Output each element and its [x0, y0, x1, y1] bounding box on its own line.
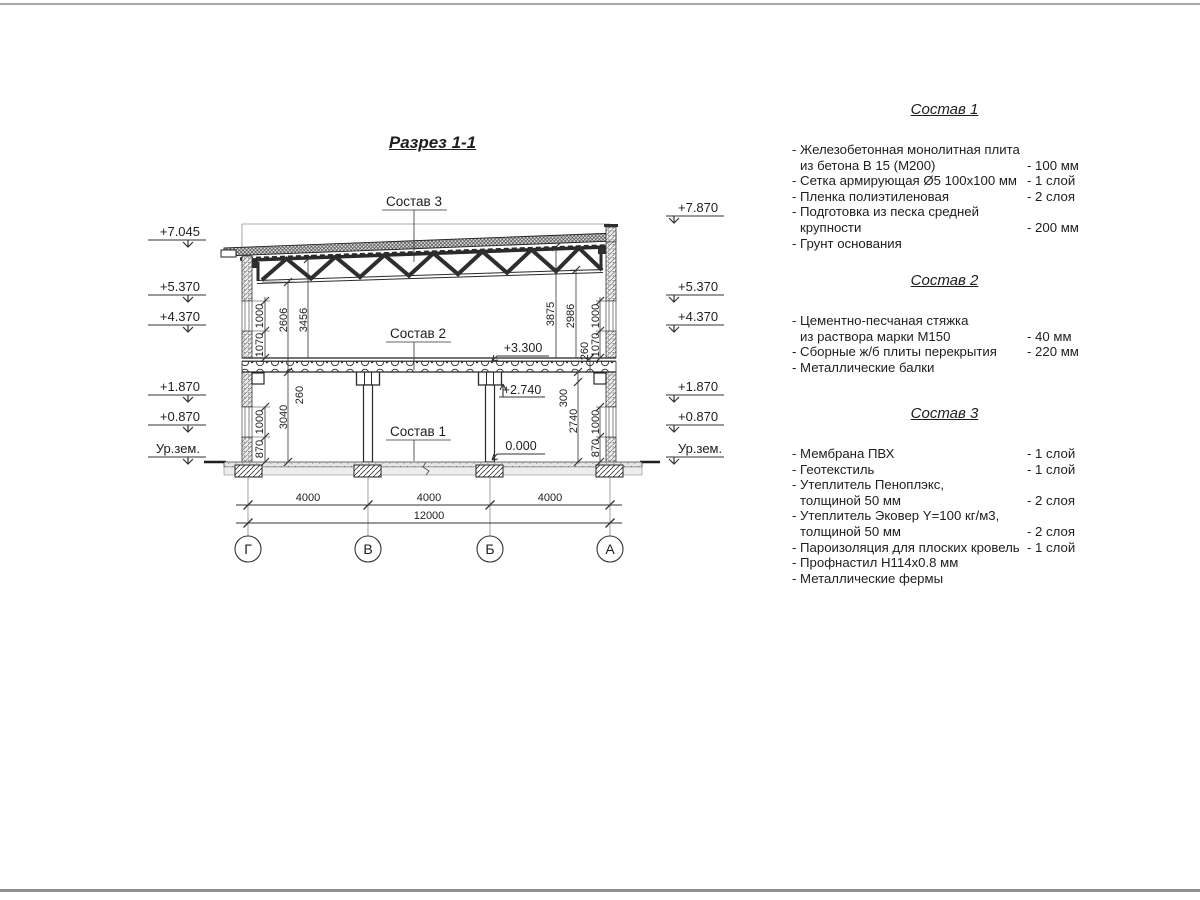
- svg-text:+4.370: +4.370: [678, 309, 718, 324]
- dim-label: 260: [294, 386, 306, 404]
- elevation-mark: Ур.зем.: [666, 441, 724, 464]
- svg-text:+2.740: +2.740: [503, 383, 542, 397]
- svg-text:+0.870: +0.870: [678, 409, 718, 424]
- dim-label: 300: [558, 389, 570, 407]
- dim-label: 2740: [568, 409, 580, 433]
- right-dimensions: 3875 2986 260 1000 1070 300 2740 1000 87…: [545, 243, 606, 466]
- composition-item: - Пароизоляция для плоских кровель - 1 с…: [792, 540, 1097, 556]
- composition-item: - Металлические фермы: [792, 571, 1097, 587]
- dim-label: 1000: [590, 410, 602, 434]
- composition-item: - Утеплитель Эковер Y=100 кг/м3,толщиной…: [792, 508, 1097, 539]
- ground-and-foundations: [204, 462, 660, 477]
- dim-span: 4000: [538, 492, 562, 504]
- left-dimensions: 1000 1070 2606 3456 260 3040 1000 870: [252, 255, 314, 466]
- elevation-mark: +0.870: [666, 409, 724, 432]
- columns: [357, 372, 502, 462]
- svg-text:Состав 3: Состав 3: [386, 194, 442, 209]
- composition-item: - Грунт основания: [792, 236, 1097, 252]
- composition-item: - Сборные ж/б плиты перекрытия - 220 мм: [792, 344, 1097, 360]
- svg-text:+7.045: +7.045: [160, 224, 200, 239]
- elevation-mark: +5.370: [666, 279, 724, 302]
- dim-label: 1000: [254, 304, 266, 328]
- dim-label: 870: [590, 439, 602, 457]
- composition-callouts: Состав 3 Состав 2 Состав 1: [382, 194, 451, 461]
- svg-text:Состав 1: Состав 1: [390, 424, 446, 439]
- svg-text:Ур.зем.: Ур.зем.: [156, 441, 200, 456]
- svg-text:+3.300: +3.300: [504, 341, 543, 355]
- svg-text:Ур.зем.: Ур.зем.: [678, 441, 722, 456]
- elevation-mark: +7.045: [148, 224, 206, 247]
- dim-label: 2606: [278, 308, 290, 332]
- left-elevation-marks: +7.045 +5.370 +4.370 +1.870 +0.870: [148, 224, 206, 464]
- composition-title: Состав 2: [792, 272, 1097, 289]
- svg-text:+1.870: +1.870: [678, 379, 718, 394]
- elevation-mark: +0.870: [148, 409, 206, 432]
- dim-label: 3875: [545, 302, 557, 326]
- dim-label: 870: [254, 440, 266, 458]
- composition-item: - Железобетонная монолитная плитаиз бето…: [792, 142, 1097, 173]
- composition-item: - Утеплитель Пеноплэкс,толщиной 50 мм - …: [792, 477, 1097, 508]
- svg-text:Состав 2: Состав 2: [390, 326, 446, 341]
- dim-label: 1070: [254, 333, 266, 357]
- window-left-upper: [242, 301, 252, 331]
- composition-item: - Подготовка из песка среднейкрупности -…: [792, 204, 1097, 235]
- elevation-mark: +5.370: [148, 279, 206, 302]
- composition-title: Состав 1: [792, 101, 1097, 118]
- axis-label: А: [605, 541, 615, 557]
- elevation-mark: +1.870: [148, 379, 206, 402]
- dim-label: 1070: [590, 333, 602, 357]
- svg-text:+0.870: +0.870: [160, 409, 200, 424]
- svg-text:+1.870: +1.870: [160, 379, 200, 394]
- svg-text:+4.370: +4.370: [160, 309, 200, 324]
- dim-span: 4000: [296, 492, 320, 504]
- dim-total: 12000: [414, 510, 445, 522]
- composition-item: - Профнастил Н114х0.8 мм: [792, 555, 1097, 571]
- level-2740: +2.740: [499, 383, 545, 397]
- axis-label: Г: [244, 541, 252, 557]
- dim-label: 3456: [298, 308, 310, 332]
- dim-label: 1000: [254, 410, 266, 434]
- elevation-mark: +4.370: [666, 309, 724, 332]
- svg-text:+5.370: +5.370: [160, 279, 200, 294]
- composition-title: Состав 3: [792, 405, 1097, 422]
- composition-item: - Сетка армирующая Ø5 100х100 мм - 1 сло…: [792, 173, 1097, 189]
- floor-slab: [242, 358, 616, 384]
- elevation-mark: Ур.зем.: [148, 441, 206, 464]
- interior-levels: +3.300 +2.740 0.000: [492, 341, 549, 460]
- window-right-lower: [606, 407, 616, 437]
- elevation-mark: +7.870: [666, 200, 724, 223]
- bottom-dimensions: 4000 4000 4000 12000: [236, 492, 622, 528]
- callout-sostav1: Состав 1: [386, 424, 451, 461]
- dim-label: 1000: [590, 304, 602, 328]
- dim-label: 3040: [278, 405, 290, 429]
- composition-item: - Металлические балки: [792, 360, 1097, 376]
- window-right-upper: [606, 301, 616, 331]
- drawing-sheet: Разрез 1-1: [0, 0, 1200, 900]
- composition-item: - Цементно-песчаная стяжкаиз раствора ма…: [792, 313, 1097, 344]
- composition-block-3: Состав 3 - Мембрана ПВХ - 1 слой - Геоте…: [792, 405, 1097, 586]
- elevation-mark: +4.370: [148, 309, 206, 332]
- composition-block-1: Состав 1 - Железобетонная монолитная пли…: [792, 101, 1097, 251]
- dim-span: 4000: [417, 492, 441, 504]
- dim-label: 2986: [565, 304, 577, 328]
- elevation-mark: +1.870: [666, 379, 724, 402]
- level-0000: 0.000: [492, 439, 545, 460]
- window-left-lower: [242, 407, 252, 437]
- axis-label: В: [363, 541, 372, 557]
- composition-block-2: Состав 2 - Цементно-песчаная стяжкаиз ра…: [792, 272, 1097, 375]
- composition-item: - Пленка полиэтиленовая - 2 слоя: [792, 189, 1097, 205]
- svg-text:0.000: 0.000: [505, 439, 536, 453]
- axis-label: Б: [485, 541, 494, 557]
- right-elevation-marks: +7.870 +5.370 +4.370 +1.870 +0.870: [666, 200, 724, 464]
- svg-text:+5.370: +5.370: [678, 279, 718, 294]
- svg-text:+7.870: +7.870: [678, 200, 718, 215]
- composition-item: - Мембрана ПВХ - 1 слой: [792, 446, 1097, 462]
- composition-item: - Геотекстиль - 1 слой: [792, 462, 1097, 478]
